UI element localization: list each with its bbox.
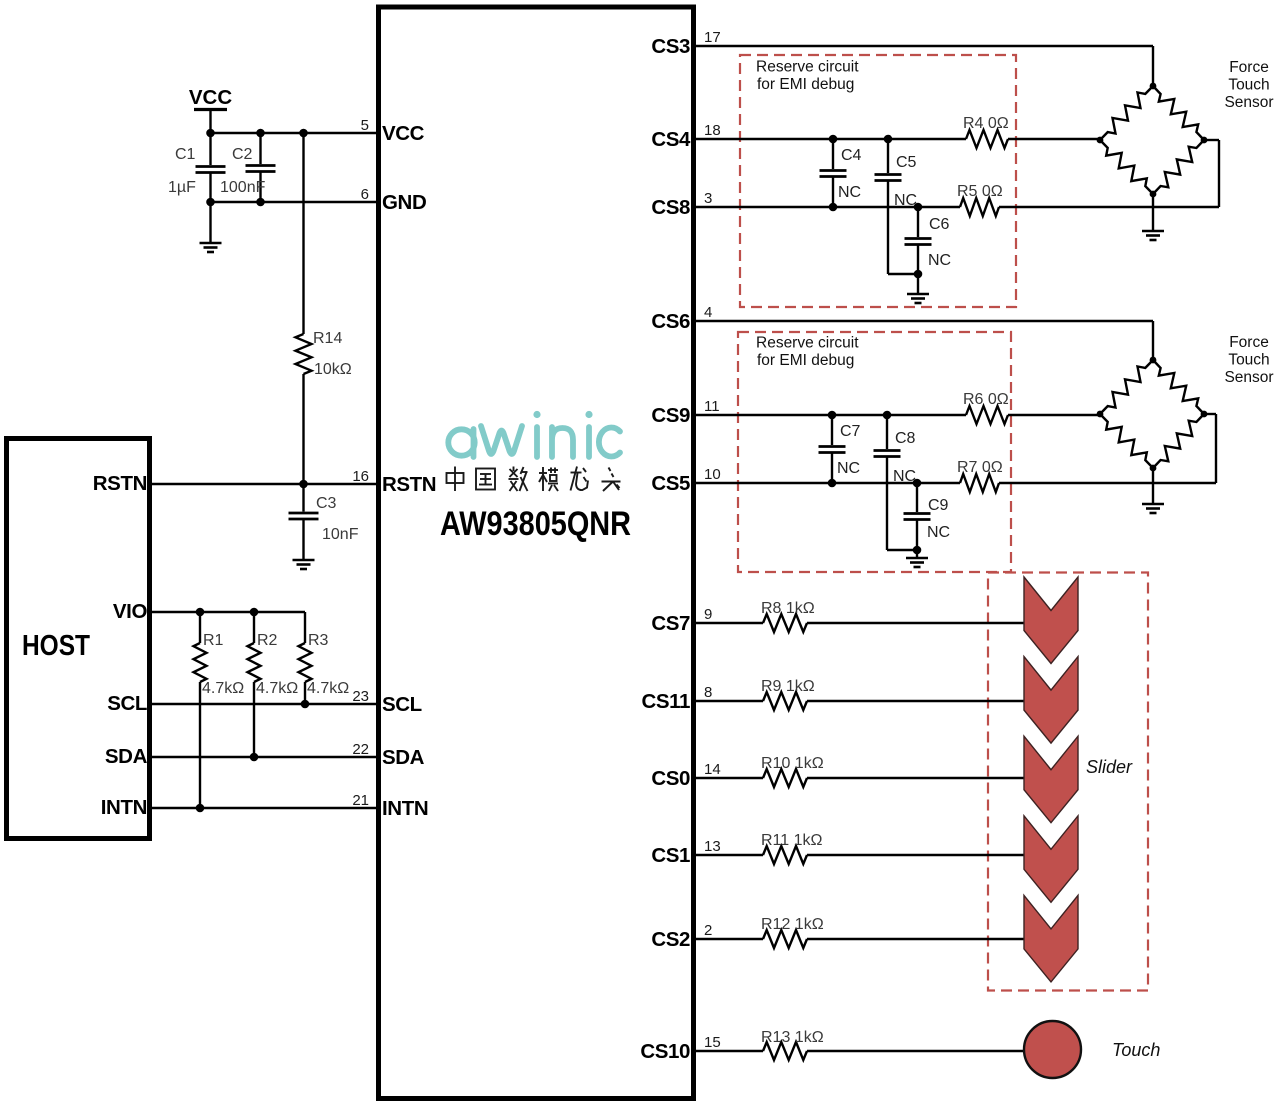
svg-text:R12 1kΩ: R12 1kΩ [761,916,824,933]
svg-text:C2: C2 [232,146,253,163]
svg-text:CS3: CS3 [651,35,690,58]
svg-text:14: 14 [704,761,721,778]
svg-text:for EMI debug: for EMI debug [757,76,854,93]
svg-text:Reserve circuit: Reserve circuit [756,59,859,76]
svg-text:R10 1kΩ: R10 1kΩ [761,755,824,772]
svg-text:R4 0Ω: R4 0Ω [963,115,1009,132]
svg-text:100nF: 100nF [220,179,266,196]
svg-text:Force: Force [1229,59,1269,76]
svg-text:SDA: SDA [105,745,148,768]
svg-text:R14: R14 [313,330,342,347]
svg-text:13: 13 [704,838,721,855]
svg-text:CS11: CS11 [641,690,690,713]
svg-text:3: 3 [704,190,712,207]
svg-text:VCC: VCC [382,122,425,145]
svg-text:Touch: Touch [1228,77,1269,94]
svg-text:CS4: CS4 [651,128,691,151]
svg-text:R2: R2 [257,632,278,649]
svg-text:SCL: SCL [382,693,422,716]
svg-text:Sensor: Sensor [1224,94,1273,111]
svg-text:CS10: CS10 [640,1040,690,1063]
svg-text:C4: C4 [841,147,862,164]
svg-text:6: 6 [361,186,369,203]
svg-text:10: 10 [704,466,721,483]
svg-text:CS0: CS0 [651,767,690,790]
svg-text:VIO: VIO [113,600,148,623]
svg-text:INTN: INTN [382,797,428,820]
svg-text:1µF: 1µF [168,179,196,196]
svg-text:Force: Force [1229,334,1269,351]
svg-text:21: 21 [352,792,369,809]
svg-text:C8: C8 [895,430,916,447]
svg-text:CS2: CS2 [651,928,690,951]
svg-text:C6: C6 [929,216,950,233]
svg-text:Sensor: Sensor [1224,369,1273,386]
svg-text:11: 11 [704,398,720,415]
svg-text:4.7kΩ: 4.7kΩ [202,680,244,697]
svg-text:Touch: Touch [1112,1040,1160,1060]
svg-text:HOST: HOST [22,630,90,662]
svg-text:R9 1kΩ: R9 1kΩ [761,678,815,695]
svg-text:CS9: CS9 [651,404,690,427]
svg-text:SDA: SDA [382,746,425,769]
svg-text:NC: NC [894,192,917,209]
svg-text:CS6: CS6 [651,310,690,333]
svg-text:AW93805QNR: AW93805QNR [440,505,631,543]
svg-text:R8 1kΩ: R8 1kΩ [761,600,815,617]
svg-text:GND: GND [382,191,426,214]
svg-text:NC: NC [893,468,916,485]
svg-text:NC: NC [927,524,950,541]
svg-text:VCC: VCC [189,86,232,109]
svg-text:23: 23 [352,688,369,705]
svg-text:R11 1kΩ: R11 1kΩ [761,832,823,849]
svg-text:15: 15 [704,1034,721,1051]
svg-text:R7 0Ω: R7 0Ω [957,459,1003,476]
svg-text:RSTN: RSTN [93,472,147,495]
svg-text:8: 8 [704,684,712,701]
svg-text:for EMI debug: for EMI debug [757,352,854,369]
svg-text:Touch: Touch [1228,352,1269,369]
svg-text:2: 2 [704,922,712,939]
svg-text:22: 22 [352,741,369,758]
svg-text:C7: C7 [840,423,861,440]
svg-text:10nF: 10nF [322,526,359,543]
svg-text:CS7: CS7 [651,612,690,635]
svg-text:SCL: SCL [107,692,147,715]
svg-text:4.7kΩ: 4.7kΩ [307,680,349,697]
svg-text:C1: C1 [175,146,196,163]
svg-text:CS5: CS5 [651,472,690,495]
svg-text:R13 1kΩ: R13 1kΩ [761,1029,824,1046]
svg-text:4: 4 [704,304,712,321]
svg-text:5: 5 [361,117,369,134]
svg-text:R3: R3 [308,632,329,649]
svg-text:R1: R1 [203,632,224,649]
svg-text:NC: NC [928,252,951,269]
svg-text:4.7kΩ: 4.7kΩ [256,680,298,697]
svg-text:CS8: CS8 [651,196,690,219]
svg-text:Reserve circuit: Reserve circuit [756,335,859,352]
svg-text:C3: C3 [316,495,337,512]
svg-text:Slider: Slider [1086,757,1133,777]
svg-text:INTN: INTN [101,796,147,819]
svg-text:17: 17 [704,29,721,46]
svg-text:RSTN: RSTN [382,473,436,496]
svg-text:NC: NC [837,460,860,477]
svg-text:CS1: CS1 [651,844,690,867]
svg-text:18: 18 [704,122,721,139]
svg-text:10kΩ: 10kΩ [314,361,352,378]
svg-text:NC: NC [838,184,861,201]
svg-text:C5: C5 [896,154,917,171]
svg-text:R6 0Ω: R6 0Ω [963,391,1009,408]
svg-text:R5 0Ω: R5 0Ω [957,183,1003,200]
svg-text:9: 9 [704,606,712,623]
svg-text:16: 16 [352,468,369,485]
svg-text:C9: C9 [928,497,949,514]
